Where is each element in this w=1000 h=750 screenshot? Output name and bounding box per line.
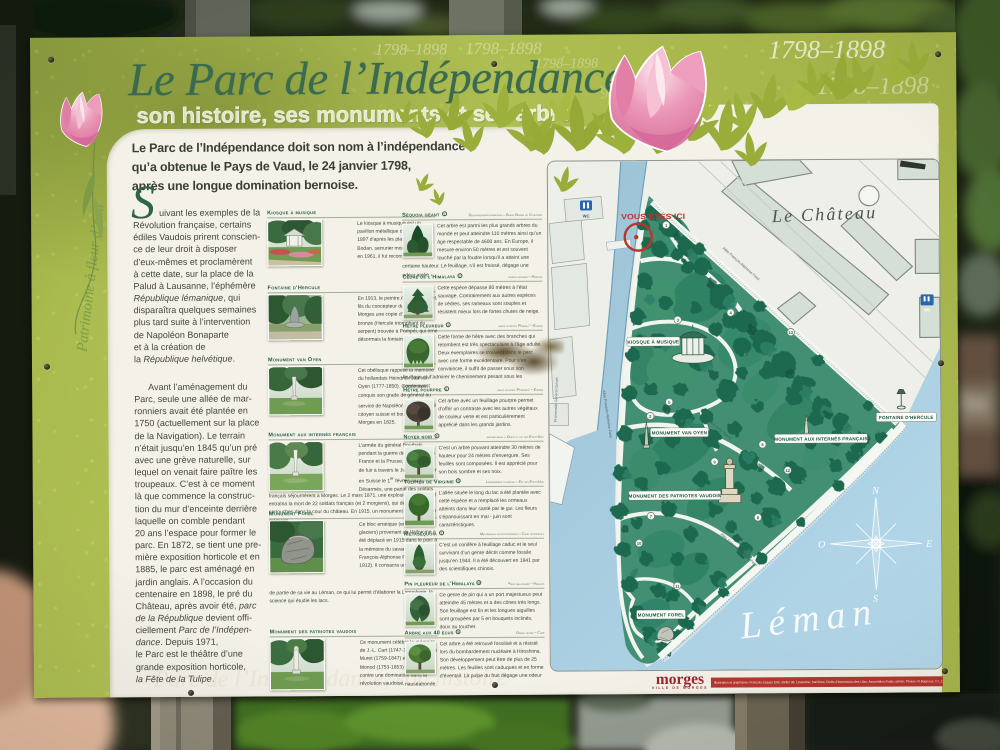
svg-text:12: 12: [785, 468, 790, 473]
svg-text:MONUMENT FOREL: MONUMENT FOREL: [638, 612, 685, 617]
svg-text:MONUMENT VAN OYEN: MONUMENT VAN OYEN: [652, 430, 708, 435]
svg-text:WC: WC: [924, 307, 931, 312]
svg-text:13: 13: [788, 330, 793, 335]
svg-text:S: S: [873, 594, 878, 605]
svg-text:O: O: [818, 539, 825, 550]
svg-text:11: 11: [675, 584, 680, 589]
svg-text:E: E: [925, 539, 932, 550]
svg-text:KIOSQUE À MUSIQUE: KIOSQUE À MUSIQUE: [627, 338, 679, 344]
svg-text:10: 10: [637, 541, 642, 546]
svg-text:MONUMENT DES PATRIOTES VAUDOIS: MONUMENT DES PATRIOTES VAUDOIS: [629, 493, 722, 499]
svg-text:TH: TH: [960, 395, 987, 417]
svg-text:FONTAINE D'HERCULE: FONTAINE D'HERCULE: [879, 415, 934, 420]
